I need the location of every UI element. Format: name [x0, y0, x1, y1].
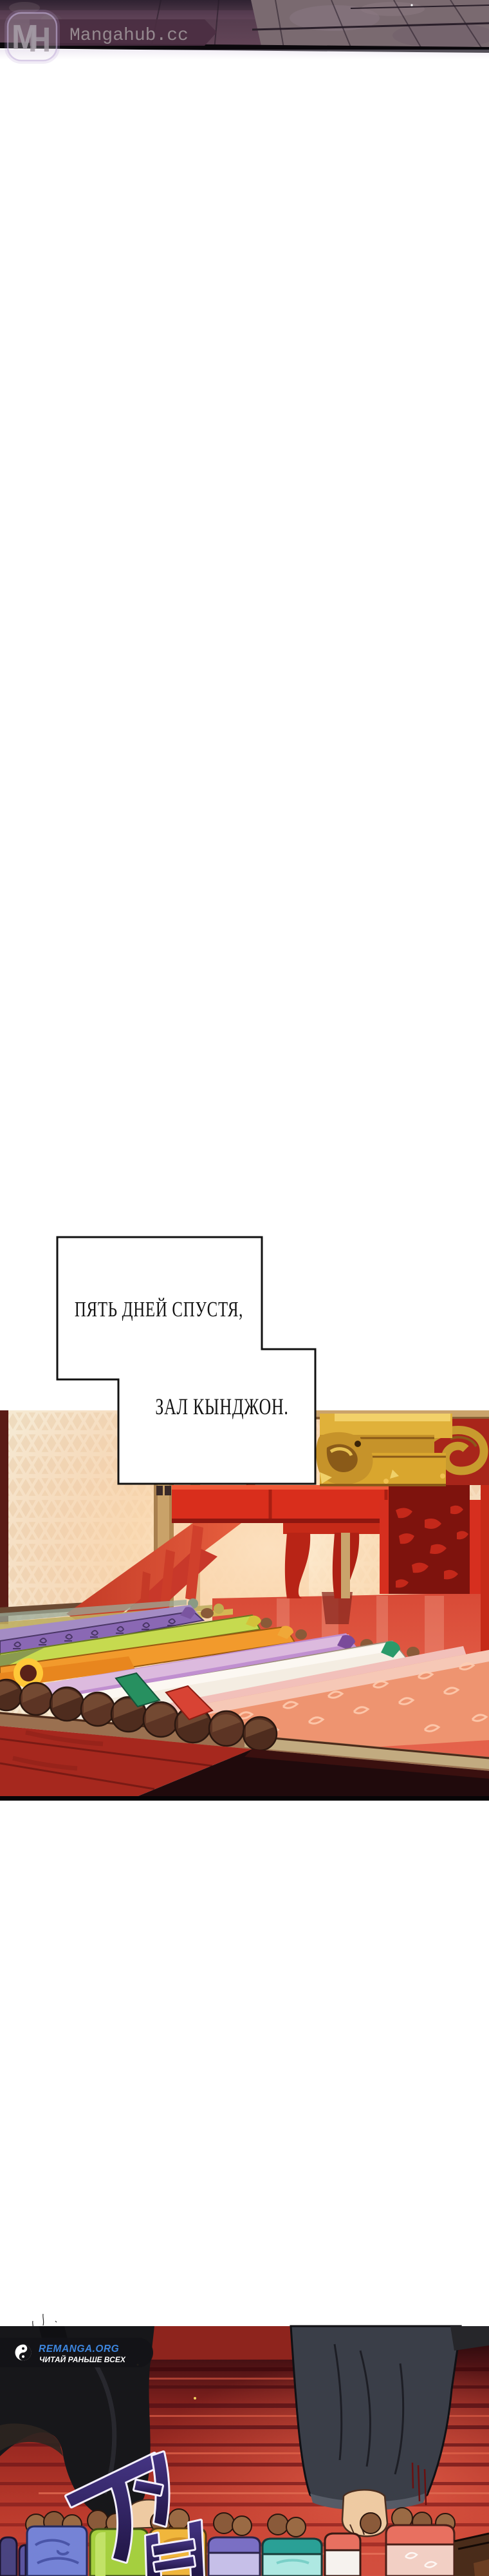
svg-text:ЧИТАЙ РАНЬШЕ ВСЕХ: ЧИТАЙ РАНЬШЕ ВСЕХ — [39, 2354, 126, 2364]
svg-text:REMANGA.ORG: REMANGA.ORG — [39, 2344, 119, 2354]
svg-text:H: H — [28, 20, 51, 59]
svg-text:Mangahub.cc: Mangahub.cc — [69, 26, 189, 46]
